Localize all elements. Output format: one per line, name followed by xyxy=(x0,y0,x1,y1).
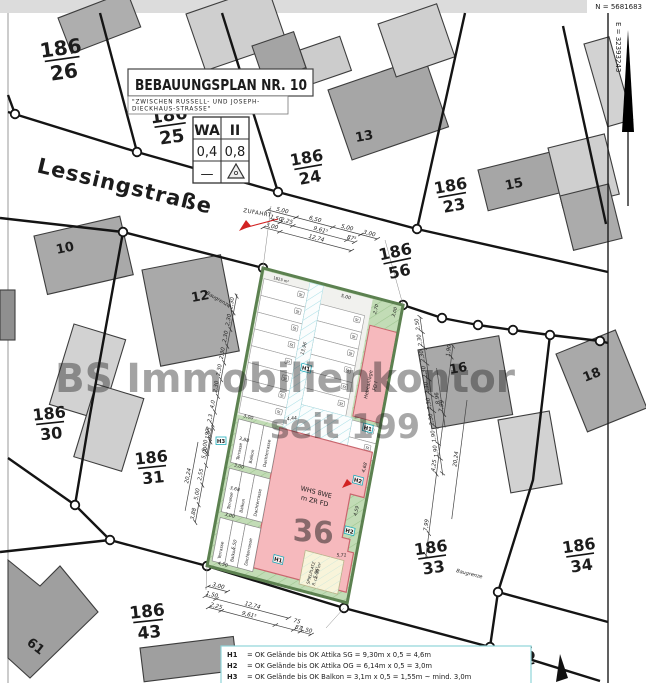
faint-parcel-number: 36 xyxy=(292,513,334,552)
site-plan: StStStStStStStStStStStStStStStStHebeanla… xyxy=(0,0,646,683)
east-coordinate: E = 32393243 xyxy=(614,22,622,72)
legend-key-h1: H1 xyxy=(227,651,238,659)
watermark-line2: seit 199 xyxy=(270,407,420,447)
zoning-dash: — xyxy=(201,167,214,182)
boundary-node xyxy=(494,588,503,597)
plot-dimension: 5,71 xyxy=(336,552,347,558)
zoning-table: WA II 0,4 0,8 — xyxy=(193,117,249,183)
legend: H1 = OK Gelände bis OK Attika SG = 9,30m… xyxy=(221,646,531,683)
boundary-node xyxy=(546,331,555,340)
boundary-node xyxy=(274,188,283,197)
boundary-node xyxy=(119,228,128,237)
boundary-node xyxy=(106,536,115,545)
zoning-gfz: 0,8 xyxy=(225,145,246,160)
boundary-node xyxy=(413,225,422,234)
existing-building xyxy=(0,290,15,340)
plan-subtitle-2: DIECKHAUS-STRASSE" xyxy=(132,107,211,113)
zoning-wa: WA xyxy=(194,123,220,139)
north-coordinate: N = 5681683 xyxy=(595,3,642,11)
boundary-node xyxy=(509,326,518,335)
boundary-node xyxy=(474,321,483,330)
boundary-node xyxy=(133,148,142,157)
parcel-denominator: 26 xyxy=(48,58,79,86)
legend-text-h2: = OK Gelände bis OK Attika OG = 6,14m x … xyxy=(247,662,432,670)
boundary-node xyxy=(438,314,447,323)
parcel-denominator: 30 xyxy=(39,423,63,444)
parcel-denominator: 24 xyxy=(297,166,322,189)
house-number: 13 xyxy=(354,128,374,146)
house-number: 12 xyxy=(190,288,210,306)
legend-key-h3: H3 xyxy=(227,673,238,681)
parcel-denominator: 23 xyxy=(441,194,466,217)
parcel-denominator: 43 xyxy=(137,622,163,644)
parcel-denominator: 33 xyxy=(421,557,446,579)
height-marker: H3 xyxy=(217,439,226,445)
title-block: BEBAUUNGSPLAN NR. 10 "ZWISCHEN RUSSELL- … xyxy=(128,69,313,114)
legend-text-h1: = OK Gelände bis OK Attika SG = 9,30m x … xyxy=(247,651,431,659)
boundary-node xyxy=(11,110,20,119)
zoning-storeys: II xyxy=(230,123,240,139)
watermark-line1: BS Immobilienkontor xyxy=(55,356,515,402)
boundary-node xyxy=(596,337,605,346)
legend-text-h3: = OK Gelände bis OK Balkon = 3,1m x 0,5 … xyxy=(247,673,472,681)
parcel-denominator: 25 xyxy=(158,125,186,149)
legend-key-h2: H2 xyxy=(227,662,238,670)
boundary-node xyxy=(71,501,80,510)
plan-subtitle-1: "ZWISCHEN RUSSELL- UND JOSEPH- xyxy=(132,100,260,106)
plan-title: BEBAUUNGSPLAN NR. 10 xyxy=(135,76,307,94)
zoning-grz: 0,4 xyxy=(197,145,218,160)
parcel-denominator: 31 xyxy=(141,467,165,488)
parcel-denominator: 34 xyxy=(569,555,594,577)
